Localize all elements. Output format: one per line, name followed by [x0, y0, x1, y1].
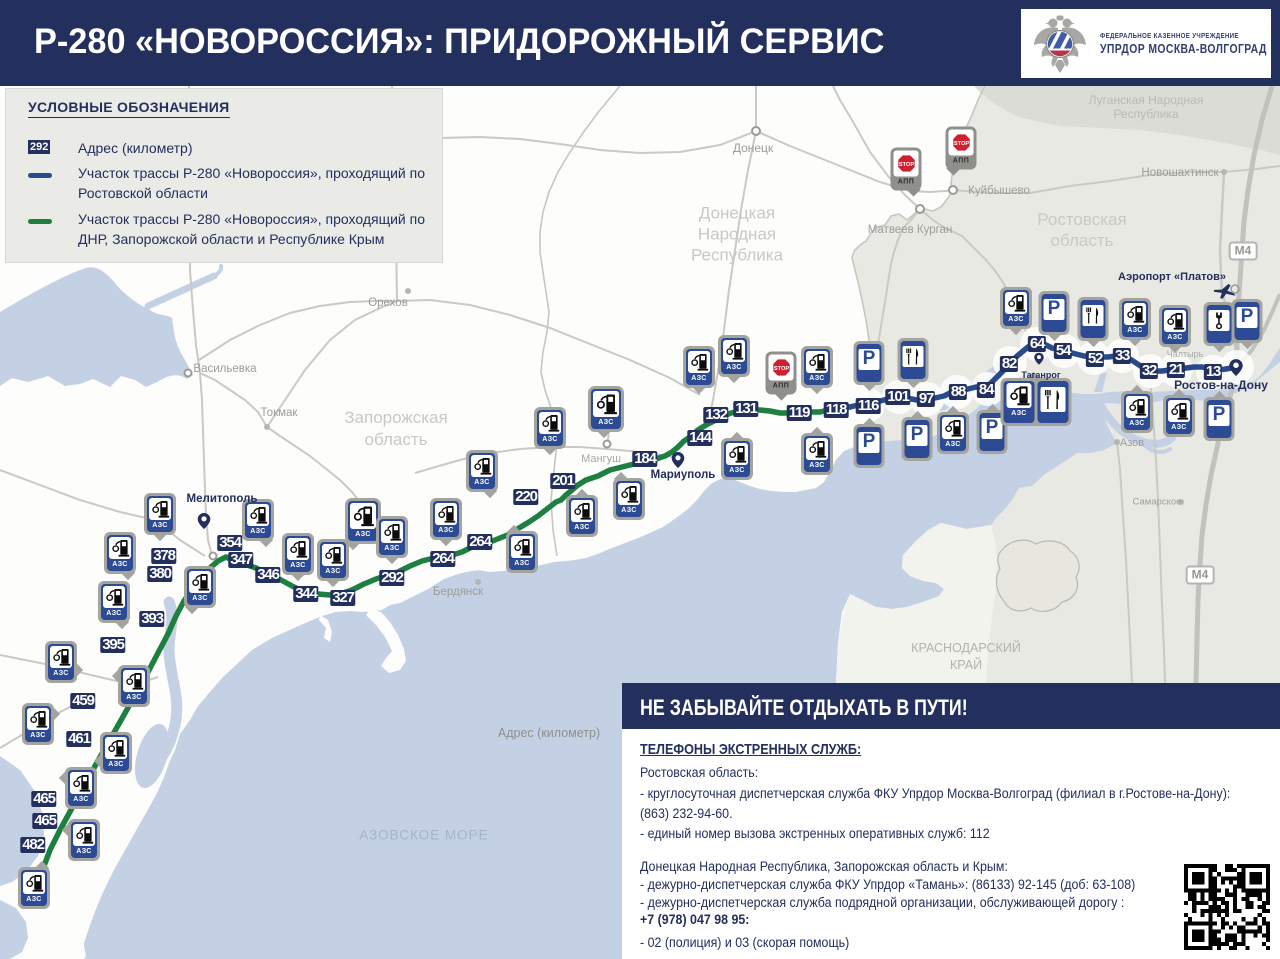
svg-text:STOP: STOP — [953, 141, 968, 147]
svg-text:STOP: STOP — [773, 366, 788, 372]
svg-text:STOP: STOP — [898, 162, 913, 168]
